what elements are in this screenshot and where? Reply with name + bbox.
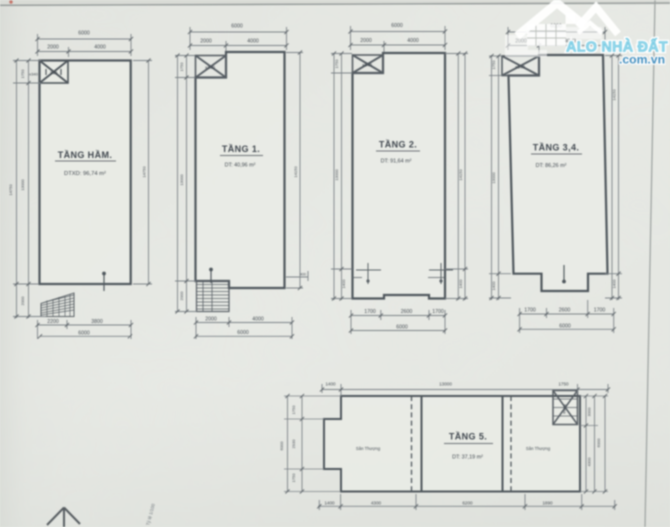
svg-text:13000: 13000 [179, 174, 184, 186]
svg-text:14750: 14750 [142, 166, 147, 178]
svg-text:1750: 1750 [179, 62, 184, 72]
svg-text:340: 340 [50, 71, 58, 76]
svg-text:1400: 1400 [324, 501, 335, 506]
svg-text:6000: 6000 [559, 324, 571, 330]
svg-text:3800: 3800 [91, 319, 103, 325]
svg-text:1750: 1750 [334, 59, 339, 69]
svg-text:1750: 1750 [20, 69, 25, 79]
svg-text:1700: 1700 [432, 309, 444, 315]
svg-text:6000: 6000 [78, 31, 90, 37]
svg-text:DT: 40,96 m²: DT: 40,96 m² [225, 163, 256, 169]
svg-text:3000: 3000 [587, 407, 592, 417]
svg-text:2930: 2930 [291, 439, 296, 449]
svg-text:1700: 1700 [364, 309, 376, 315]
svg-text:Sân Thượng: Sân Thượng [526, 446, 551, 451]
svg-text:TẦNG HẦM.: TẦNG HẦM. [58, 150, 113, 160]
svg-text:2200: 2200 [47, 319, 59, 325]
svg-text:2000: 2000 [360, 38, 372, 44]
svg-text:DT: 91,64 m²: DT: 91,64 m² [381, 159, 412, 165]
svg-text:TẦNG 3,4.: TẦNG 3,4. [533, 143, 580, 153]
svg-text:x340: x340 [205, 65, 215, 70]
svg-text:400: 400 [300, 273, 306, 277]
svg-text:14150: 14150 [612, 89, 617, 101]
svg-text:x340: x340 [362, 63, 372, 68]
svg-text:2000: 2000 [20, 296, 25, 306]
svg-text:1400: 1400 [491, 281, 496, 291]
svg-text:2600: 2600 [401, 309, 413, 315]
svg-text:14750: 14750 [8, 184, 13, 196]
svg-text:Sân Thượng: Sân Thượng [356, 446, 381, 451]
svg-text:x340: x340 [515, 65, 525, 70]
svg-text:14150: 14150 [293, 166, 298, 178]
svg-text:TẦNG 1.: TẦNG 1. [222, 144, 260, 154]
svg-text:2000: 2000 [200, 39, 212, 45]
svg-text:6000: 6000 [78, 331, 90, 337]
svg-text:1750: 1750 [558, 382, 569, 387]
svg-text:DT: 86,26 m²: DT: 86,26 m² [536, 163, 567, 169]
svg-text:1750: 1750 [491, 60, 496, 70]
svg-text:6000: 6000 [396, 325, 408, 331]
svg-text:x340: x340 [29, 72, 38, 77]
svg-text:DTXD: 96,74 m²: DTXD: 96,74 m² [64, 171, 106, 177]
svg-text:TẦNG 5.: TẦNG 5. [449, 432, 487, 442]
svg-text:4000: 4000 [407, 38, 419, 44]
svg-text:14150: 14150 [458, 169, 463, 181]
svg-text:1750: 1750 [291, 405, 296, 415]
svg-text:6000: 6000 [279, 441, 284, 451]
svg-text:2000: 2000 [47, 45, 59, 51]
svg-text:6000: 6000 [391, 23, 403, 29]
svg-text:4300: 4300 [371, 501, 382, 506]
svg-text:2000: 2000 [179, 291, 184, 301]
svg-text:1700: 1700 [524, 308, 536, 314]
svg-text:13000: 13000 [491, 172, 496, 184]
svg-text:6000: 6000 [596, 438, 601, 448]
svg-text:4000: 4000 [247, 39, 259, 45]
svg-text:TẦNG 2.: TẦNG 2. [379, 140, 417, 150]
svg-text:DT: 37,19 m²: DT: 37,19 m² [452, 455, 483, 461]
svg-text:thang: thang [563, 404, 567, 414]
svg-text:2600: 2600 [559, 308, 571, 314]
svg-text:.com.vn: .com.vn [619, 53, 665, 67]
svg-text:6000: 6000 [231, 24, 243, 30]
svg-text:1400: 1400 [341, 279, 346, 289]
svg-text:13000: 13000 [334, 169, 339, 181]
svg-text:4000: 4000 [94, 45, 106, 51]
svg-text:1750: 1750 [291, 473, 296, 483]
svg-text:6000: 6000 [237, 330, 249, 336]
svg-text:6200: 6200 [462, 501, 473, 506]
svg-text:13000: 13000 [439, 382, 452, 387]
svg-text:1400: 1400 [612, 279, 617, 289]
svg-text:1400: 1400 [325, 382, 336, 387]
svg-text:1700: 1700 [594, 308, 606, 314]
svg-text:4300: 4300 [587, 457, 592, 467]
svg-text:1890: 1890 [542, 501, 553, 506]
svg-text:1400: 1400 [458, 279, 463, 289]
svg-text:4000: 4000 [252, 317, 264, 323]
svg-text:2000: 2000 [205, 317, 217, 323]
svg-text:13000: 13000 [20, 179, 25, 191]
